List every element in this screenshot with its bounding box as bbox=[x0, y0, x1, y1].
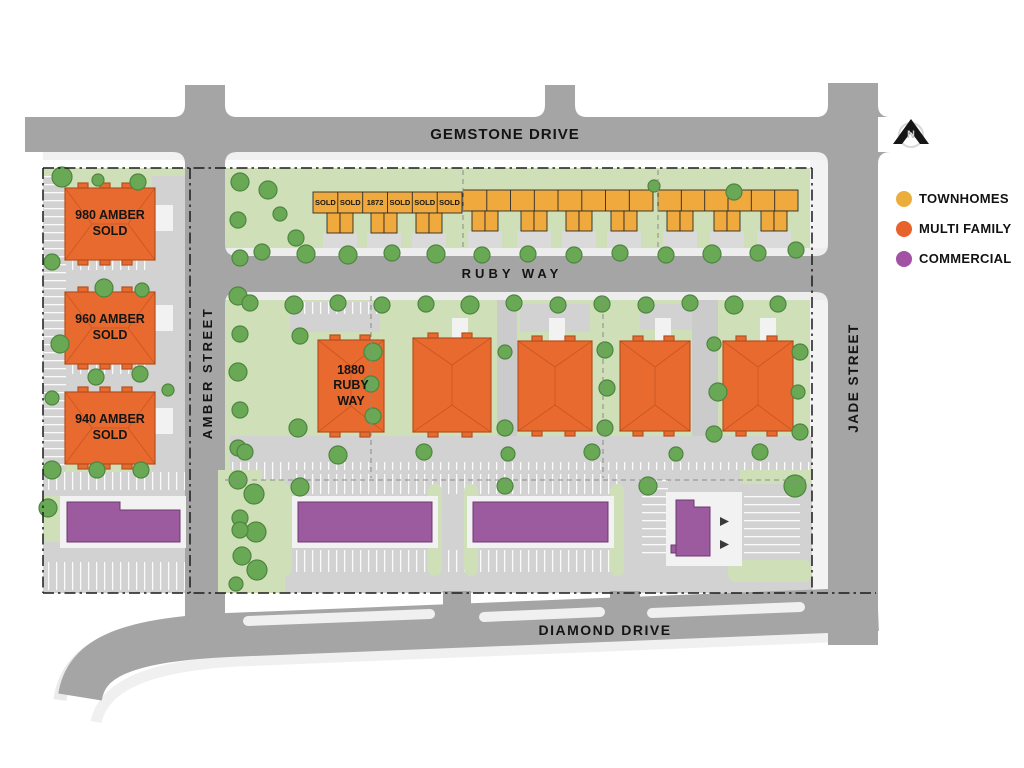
townhome-unit-label: SOLD bbox=[412, 192, 437, 212]
gemstone-drive-road bbox=[25, 117, 878, 152]
north-arrow bbox=[893, 119, 929, 147]
building-960-amber bbox=[65, 287, 155, 369]
legend-label: COMMERCIAL bbox=[919, 251, 1012, 266]
townhomes-swatch-icon bbox=[896, 191, 912, 207]
townhome-unit-label: SOLD bbox=[338, 192, 363, 212]
building-multi-2 bbox=[413, 333, 491, 437]
legend-item-multi-family: MULTI FAMILY bbox=[896, 220, 1012, 237]
jade-street-road bbox=[828, 83, 878, 645]
site-plan: GEMSTONE DRIVE RUBY WAY DIAMOND DRIVE AM… bbox=[0, 0, 1024, 768]
commercial-swatch-icon bbox=[896, 251, 912, 267]
commercial-building-mid-1 bbox=[298, 502, 432, 542]
legend-item-townhomes: TOWNHOMES bbox=[896, 190, 1012, 207]
townhome-unit-label: 1872 bbox=[363, 192, 388, 212]
legend-label: TOWNHOMES bbox=[919, 191, 1009, 206]
legend-item-commercial: COMMERCIAL bbox=[896, 250, 1012, 267]
townhome-unit-label: SOLD bbox=[313, 192, 338, 212]
townhome-unit-label: SOLD bbox=[387, 192, 412, 212]
legend: TOWNHOMES MULTI FAMILY COMMERCIAL bbox=[896, 190, 1012, 280]
building-multi-3 bbox=[518, 336, 592, 436]
north-driveway-stub bbox=[545, 85, 575, 119]
site-plan-drawing bbox=[0, 0, 1024, 768]
building-multi-5 bbox=[723, 336, 793, 436]
building-980-amber bbox=[65, 183, 155, 265]
commercial-building-mid-2 bbox=[473, 502, 608, 542]
commercial-building-east bbox=[676, 500, 710, 556]
legend-label: MULTI FAMILY bbox=[919, 221, 1011, 236]
multi-family-swatch-icon bbox=[896, 221, 912, 237]
building-multi-4 bbox=[620, 336, 690, 436]
townhome-unit-label: SOLD bbox=[437, 192, 462, 212]
building-940-amber bbox=[65, 387, 155, 469]
townhome-unit-labels: SOLD SOLD 1872 SOLD SOLD SOLD bbox=[313, 192, 462, 212]
